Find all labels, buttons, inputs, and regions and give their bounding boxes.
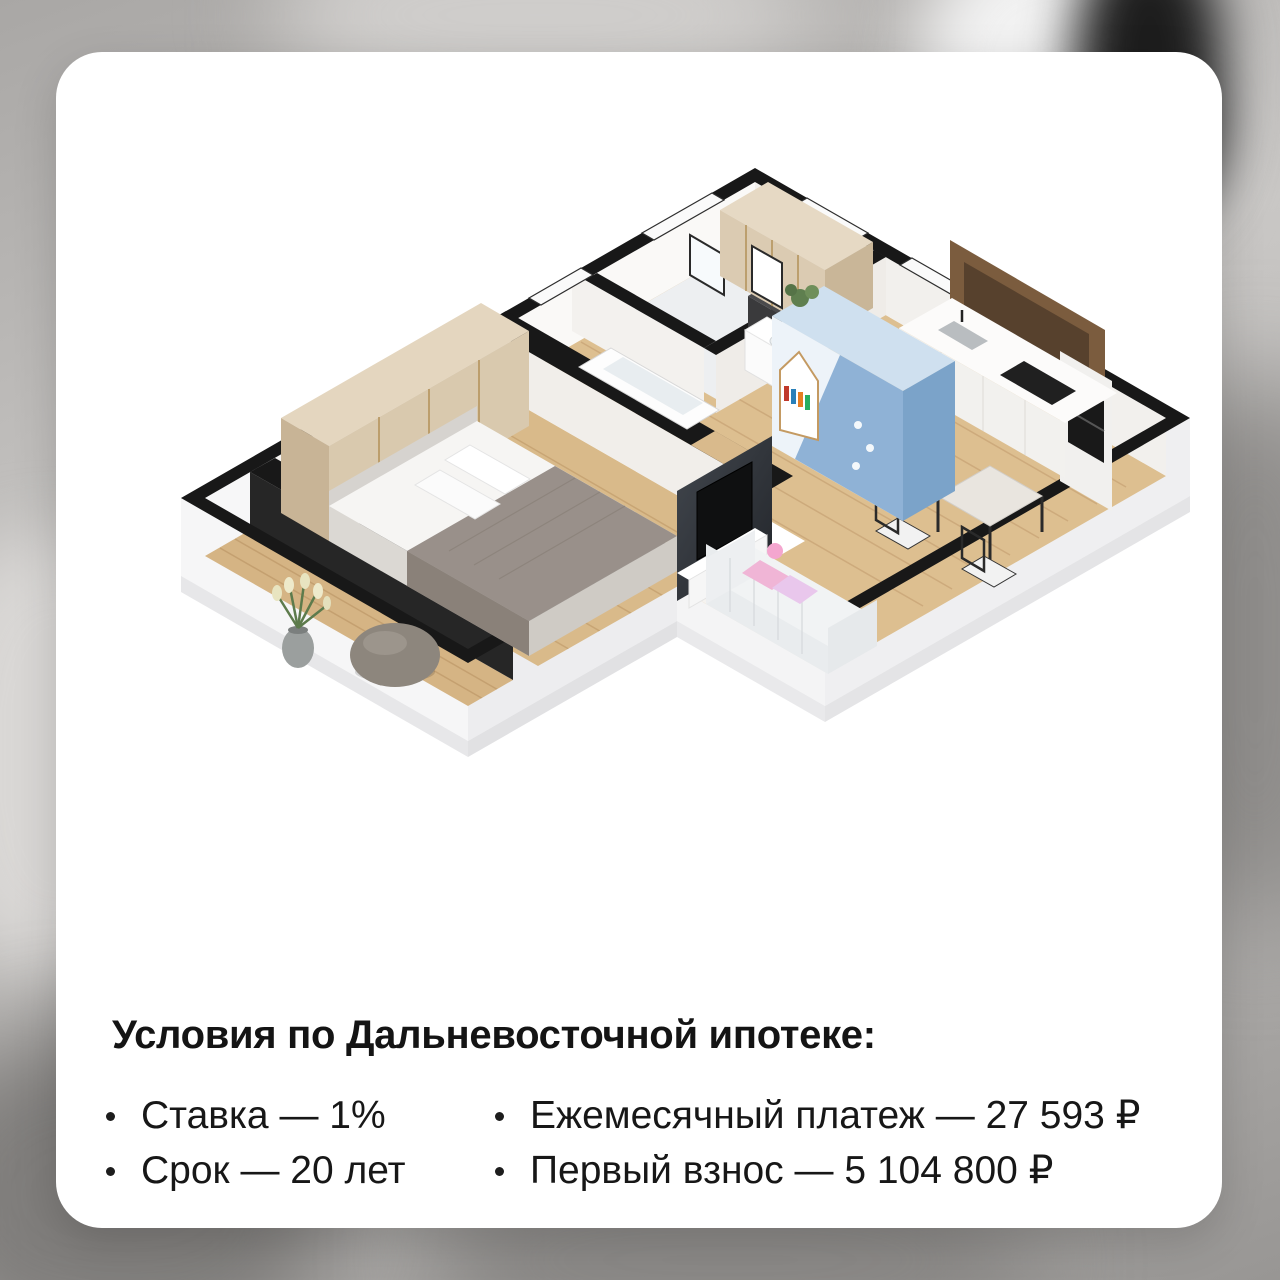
bullet-dot [495, 1112, 504, 1121]
list-item: Ежемесячный платеж — 27 593 ₽ [495, 1092, 1195, 1139]
list-item: Срок — 20 лет [106, 1147, 476, 1194]
list-item: Первый взнос — 5 104 800 ₽ [495, 1147, 1195, 1194]
bullet-dot [106, 1112, 115, 1121]
conditions-left-column: Ставка — 1% Срок — 20 лет [106, 1092, 476, 1202]
page: Условия по Дальневосточной ипотеке: Став… [0, 0, 1280, 1280]
bullet-dot [495, 1167, 504, 1176]
conditions-right-column: Ежемесячный платеж — 27 593 ₽ Первый взн… [495, 1092, 1195, 1202]
list-item: Ставка — 1% [106, 1092, 476, 1139]
list-item-text: Первый взнос — 5 104 800 ₽ [530, 1147, 1054, 1194]
list-item-text: Срок — 20 лет [141, 1147, 406, 1194]
list-item-text: Ежемесячный платеж — 27 593 ₽ [530, 1092, 1141, 1139]
bullet-dot [106, 1167, 115, 1176]
list-item-text: Ставка — 1% [141, 1092, 386, 1139]
conditions-title: Условия по Дальневосточной ипотеке: [112, 1012, 1152, 1058]
